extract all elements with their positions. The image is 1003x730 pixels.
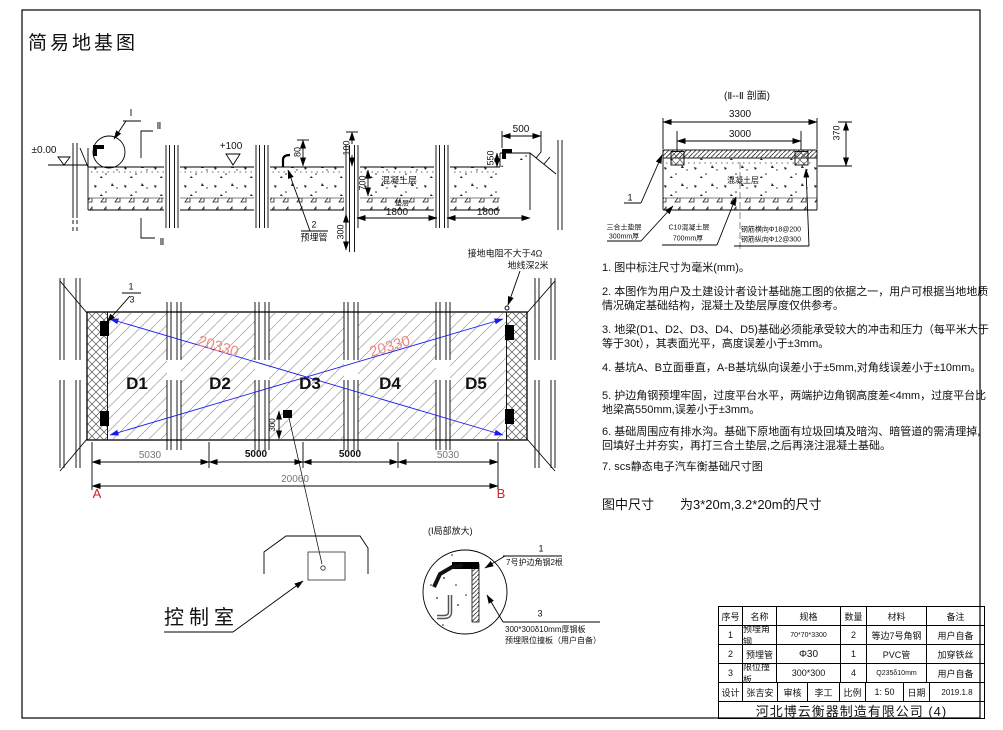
drawing-sheet: 简易地基图 ±0.00 +100 Ⅱ Ⅱ I 80 100 700 300 55… [0, 0, 1003, 730]
cell-spec: 70*70*3300 [777, 626, 841, 644]
cell-note: 加穿铁丝 [927, 645, 984, 663]
cell-qty: 1 [841, 645, 867, 663]
cell-seq: 3 [719, 664, 743, 682]
cell-material: Q235δ10mm [867, 664, 927, 682]
header-material: 材料 [867, 607, 927, 625]
section2-title: (Ⅱ--Ⅱ 剖面) [724, 92, 770, 103]
dim-500: 500 [513, 125, 530, 136]
profile-concrete-label: 混凝土层 [381, 176, 417, 185]
junction-dim-300: 300 [269, 418, 277, 431]
cut-mark-bottom-label: Ⅱ [160, 238, 165, 249]
dim-1800-b: 1800 [477, 208, 499, 219]
note-6: 6. 基础周围应有排水沟。基础下原地面有垃圾回填及暗沟、暗管道的需清理掉,回填好… [602, 426, 990, 453]
page-title: 简易地基图 [28, 34, 138, 54]
cell-note: 用户自备 [927, 626, 984, 644]
note-1: 1. 图中标注尺寸为毫米(mm)。 [602, 262, 990, 276]
table-row: 1 预埋角钢 70*70*3300 2 等边7号角钢 用户自备 [719, 626, 984, 645]
cell-name: 预埋角钢 [743, 626, 777, 644]
scale-value: 1: 50 [866, 683, 904, 701]
dim-100: 100 [342, 140, 351, 155]
module-d3-label: D3 [299, 375, 321, 393]
dim-1800-a: 1800 [386, 208, 408, 219]
dim-550: 550 [486, 150, 495, 165]
section2-concrete-label: 混凝土层 [727, 177, 759, 185]
header-spec: 规格 [777, 607, 841, 625]
detail-ref-3: 3 [537, 609, 542, 618]
designer-name: 张吉安 [743, 683, 778, 701]
cut-mark-top-label: Ⅱ [157, 122, 162, 133]
table-row: 3 限位撞板 300*300 4 Q235δ10mm 用户自备 [719, 664, 984, 683]
cell-name: 预埋管 [743, 645, 777, 663]
cell-spec: 300*300 [777, 664, 841, 682]
note-5: 5. 护边角钢预埋牢固，过度平台水平，两端护边角钢高度差<4mm，过度平台比地梁… [602, 390, 990, 417]
dim-segment-2: 5000 [245, 450, 267, 461]
scale-label: 比例 [840, 683, 866, 701]
cell-name: 限位撞板 [743, 664, 777, 682]
cell-seq: 1 [719, 626, 743, 644]
detail-ref-1: 1 [538, 544, 543, 553]
note-4: 4. 基坑A、B立面垂直，A-B基坑纵向误差小于±5mm,对角线误差小于±10m… [602, 362, 990, 376]
dim-segment-3: 5000 [339, 450, 361, 461]
section2-ref-1: 1 [627, 193, 632, 202]
company-name: 河北博云衡器制造有限公司 (4) [719, 702, 984, 718]
cushion-callout-1: 三合土垫层 [607, 224, 642, 231]
detail-callout-3-line1: 300*300δ10mm厚钢板 [505, 626, 586, 634]
cell-seq: 2 [719, 645, 743, 663]
header-seq: 序号 [719, 607, 743, 625]
ground-note-2: 地线深2米 [507, 261, 548, 270]
corner-b-label: B [497, 487, 506, 501]
pipe-callout-num: 2 [311, 220, 316, 229]
note-7: 7. scs静态电子汽车衡基础尺寸图 [602, 461, 990, 475]
detail-ref-label: I [130, 109, 133, 120]
header-qty: 数量 [841, 607, 867, 625]
rebar-callout-2: 钢筋纵向Φ12@300 [741, 236, 801, 243]
dim-370: 370 [832, 125, 841, 140]
module-d4-label: D4 [379, 375, 401, 393]
ground-note-1: 接地电阻不大于4Ω [468, 249, 543, 258]
note-2: 2. 本图作为用户及土建设计者设计基础施工图的依据之一，用户可根据当地地质情况确… [602, 286, 990, 313]
control-room-label: 控制室 [164, 608, 239, 629]
dim-total: 20060 [281, 475, 309, 486]
cell-material: PVC管 [867, 645, 927, 663]
concrete-callout-2: 700mm厚 [673, 235, 703, 242]
dim-segment-4: 5030 [437, 451, 459, 462]
dim-3300: 3300 [729, 110, 751, 121]
module-d1-label: D1 [126, 375, 148, 393]
detail-callout-3-line2: 预埋限位撞板（用户自备） [505, 637, 601, 645]
corner-a-label: A [93, 487, 102, 501]
cell-spec: Φ30 [777, 645, 841, 663]
cushion-callout-2: 300mm厚 [609, 233, 639, 240]
dim-80: 80 [293, 147, 302, 157]
plan-view-drawing [60, 271, 555, 564]
note-3: 3. 地梁(D1、D2、D3、D4、D5)基础必须能承受较大的冲击和压力（每平米… [602, 324, 990, 351]
dim-segment-1: 5030 [139, 451, 161, 462]
header-name: 名称 [743, 607, 777, 625]
table-footer-row: 设计 张吉安 审核 李工 比例 1: 50 日期 2019.1.8 [719, 683, 984, 702]
pipe-callout-label: 预埋管 [300, 233, 327, 242]
detail-callout-1: 7号护边角钢2根 [506, 559, 563, 567]
table-row: 2 预埋管 Φ30 1 PVC管 加穿铁丝 [719, 645, 984, 664]
parts-table: 序号 名称 规格 数量 材料 备注 1 预埋角钢 70*70*3300 2 等边… [718, 606, 985, 719]
cell-qty: 4 [841, 664, 867, 682]
reviewer-name: 李工 [808, 683, 840, 701]
cell-note: 用户自备 [927, 664, 984, 682]
notes-footer: 图中尺寸 为3*20m,3.2*20m的尺寸 [602, 498, 990, 512]
date-label: 日期 [904, 683, 930, 701]
review-label: 审核 [778, 683, 808, 701]
detail-title: (Ⅰ局部放大) [428, 527, 473, 536]
table-header-row: 序号 名称 规格 数量 材料 备注 [719, 607, 984, 626]
concrete-callout-1: C10混凝土层 [669, 224, 710, 231]
level-zero-label: ±0.00 [32, 146, 57, 157]
design-label: 设计 [719, 683, 743, 701]
module-d5-label: D5 [465, 375, 487, 393]
cell-ref-top: 1 [128, 282, 133, 291]
level-plus-label: +100 [220, 142, 243, 153]
rebar-callout-1: 钢筋横向Φ18@200 [741, 226, 801, 233]
dim-3000: 3000 [729, 130, 751, 141]
profile-cushion-label: 垫层 [395, 200, 409, 207]
cell-ref-bottom: 3 [129, 295, 134, 304]
cell-qty: 2 [841, 626, 867, 644]
dim-700: 700 [358, 175, 367, 190]
cell-material: 等边7号角钢 [867, 626, 927, 644]
module-d2-label: D2 [209, 375, 231, 393]
date-value: 2019.1.8 [930, 683, 984, 701]
dim-300-pipe: 300 [336, 224, 345, 239]
header-note: 备注 [927, 607, 984, 625]
